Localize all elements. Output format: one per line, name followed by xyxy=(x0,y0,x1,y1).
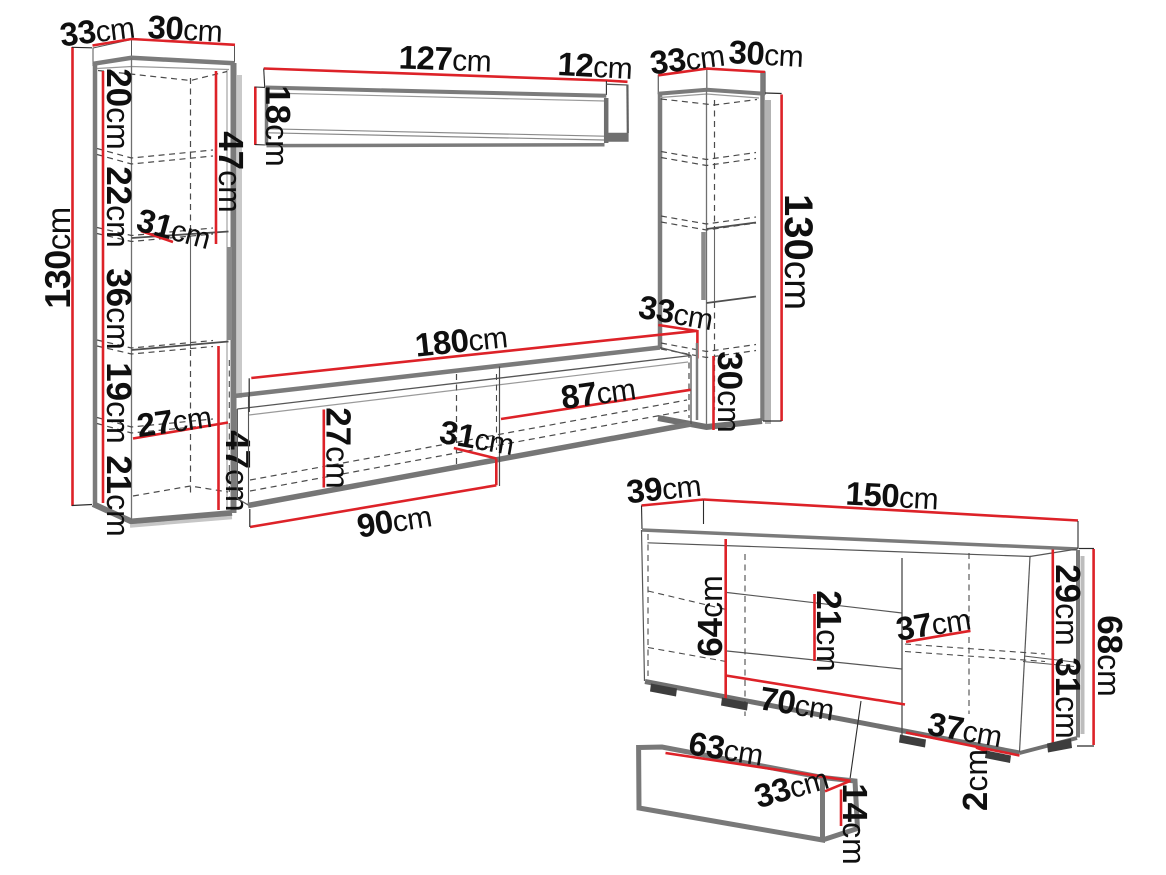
svg-text:21cm: 21cm xyxy=(99,455,138,537)
svg-text:127cm: 127cm xyxy=(398,38,492,78)
svg-text:29cm: 29cm xyxy=(1048,564,1087,646)
svg-text:130cm: 130cm xyxy=(776,194,820,310)
svg-text:68cm: 68cm xyxy=(1090,615,1129,697)
svg-text:20cm: 20cm xyxy=(99,68,138,150)
svg-text:19cm: 19cm xyxy=(99,362,138,444)
svg-text:22cm: 22cm xyxy=(99,166,138,248)
svg-text:36cm: 36cm xyxy=(99,268,138,350)
svg-text:14cm: 14cm xyxy=(835,783,874,865)
svg-text:21cm: 21cm xyxy=(809,590,848,672)
svg-text:64cm: 64cm xyxy=(691,575,730,657)
svg-text:130cm: 130cm xyxy=(37,207,78,309)
svg-text:30cm: 30cm xyxy=(710,351,749,433)
svg-text:31cm: 31cm xyxy=(1048,657,1087,739)
svg-text:27cm: 27cm xyxy=(319,407,358,489)
svg-text:2cm: 2cm xyxy=(956,749,995,811)
svg-text:47cm: 47cm xyxy=(211,131,250,213)
svg-text:18cm: 18cm xyxy=(258,85,297,167)
